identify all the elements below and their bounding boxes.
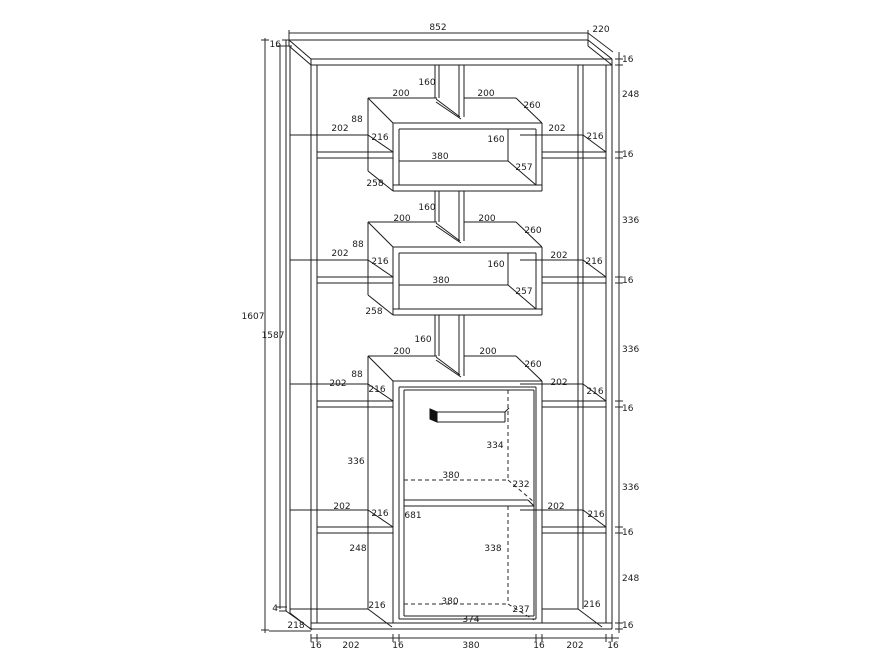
dim-overall-depth: 220 [592,25,609,35]
dim-b1-shelf-right-d: 216 [586,132,603,142]
dim-b1-span-left: 200 [392,89,409,99]
dim-bc-0: 16 [310,641,322,651]
dim-b3-shelf-right-w: 202 [550,378,567,388]
dim-b2-span-right: 200 [478,214,495,224]
dim-base: 4 [272,604,278,614]
dim-rc-9: 248 [622,574,639,584]
dim-b3-span-left: 200 [393,347,410,357]
dim-bottom-depth: 218 [287,621,304,631]
dim-bc-4: 16 [533,641,545,651]
dim-b2-shelf-right-d: 216 [585,257,602,267]
dim-b3-divider: 160 [414,335,431,345]
dim-rc-2: 16 [622,150,634,160]
dim-b2-inner-h: 160 [487,260,504,270]
dim-rc-5: 336 [622,345,639,355]
dim-rc-4: 16 [622,276,634,286]
dim-b3-inner-h: 681 [404,511,421,521]
dim-leftcol-gap-low: 248 [349,544,366,554]
dim-b1-inner-w: 380 [431,152,448,162]
dim-b2-span-left: 200 [393,214,410,224]
door-shelf [404,500,534,506]
dim-rc-3: 336 [622,216,639,226]
dim-b3-shelf-left-d: 216 [368,385,385,395]
dim-rightcol-shelf-d: 216 [587,510,604,520]
left-shelves [290,135,393,533]
dim-b3-shelf-right-d: 216 [586,387,603,397]
dim-b1-depth: 260 [523,101,540,111]
dim-rc-10: 16 [622,621,634,631]
dim-b3-shelf-left-w: 202 [329,379,346,389]
dim-total-height: 1607 [242,312,265,322]
dim-b3-mid-d: 232 [512,480,529,490]
dim-overall-width: 852 [429,23,446,33]
dim-b2-inner-w: 380 [432,276,449,286]
dim-b3-lower-h: 338 [484,544,501,554]
dim-leftcol-gap-mid: 336 [347,457,364,467]
dim-b2-depth: 260 [524,226,541,236]
dim-b1-inner-h: 160 [487,135,504,145]
dim-b3-lower-d: 237 [512,605,529,615]
dim-b3-door-w: 374 [462,615,479,625]
technical-drawing-page: 852 220 16 1607 1587 4 218 16 248 16 336… [0,0,877,658]
dim-b1-bottom-d: 258 [366,179,383,189]
upper-box [368,98,542,191]
dim-b2-divider: 160 [418,203,435,213]
dim-b2-shelf-right-w: 202 [550,251,567,261]
dim-b2-inner-d: 257 [515,287,532,297]
dim-b3-span-right: 200 [479,347,496,357]
right-shelves [520,135,606,533]
dim-bc-6: 16 [607,641,619,651]
dim-inner-height: 1587 [262,331,285,341]
dim-b3-lower-w: 380 [441,597,458,607]
dim-leftcol-shelf-w: 202 [333,502,350,512]
dim-rc-1: 248 [622,90,639,100]
dimension-labels: 852 220 16 1607 1587 4 218 16 248 16 336… [242,23,640,651]
dim-b1-divider: 160 [418,78,435,88]
center-divider [435,65,464,377]
dim-bc-5: 202 [566,641,583,651]
dim-b2-shelf-left-w: 202 [331,249,348,259]
dim-b2-shelf-left-d: 216 [371,257,388,267]
dim-rc-0: 16 [622,55,634,65]
dim-leftcol-shelf-d: 216 [371,509,388,519]
dim-rightcol-bottom-d: 216 [583,600,600,610]
dim-b3-handle-drop: 334 [486,441,503,451]
hidden-lines [404,390,534,620]
dim-b2-side: 88 [352,240,364,250]
dim-leftcol-bottom-d: 216 [368,601,385,611]
cabinet-technical-drawing: 852 220 16 1607 1587 4 218 16 248 16 336… [0,0,877,658]
dim-bc-3: 380 [462,641,479,651]
handle-end-cap [430,409,437,422]
dim-b1-span-right: 200 [477,89,494,99]
dim-b1-side: 88 [351,115,363,125]
dim-b3-side: 88 [351,370,363,380]
dim-bc-1: 202 [342,641,359,651]
dim-b1-shelf-left-d: 216 [371,133,388,143]
door-panel [404,390,534,616]
dim-rc-7: 336 [622,483,639,493]
middle-box [368,222,542,315]
door-handle [430,408,509,422]
dim-b1-inner-d: 257 [515,163,532,173]
dim-b3-depth: 260 [524,360,541,370]
dim-top-thickness: 16 [270,40,282,50]
dim-rightcol-shelf-w: 202 [547,502,564,512]
dim-b1-shelf-left-w: 202 [331,124,348,134]
dim-b1-shelf-right-w: 202 [548,124,565,134]
dimension-lines [261,30,623,642]
dim-rc-6: 16 [622,404,634,414]
dim-b2-bottom-d: 258 [365,307,382,317]
dim-b3-mid-w: 380 [442,471,459,481]
dim-rc-8: 16 [622,528,634,538]
dim-bc-2: 16 [392,641,404,651]
